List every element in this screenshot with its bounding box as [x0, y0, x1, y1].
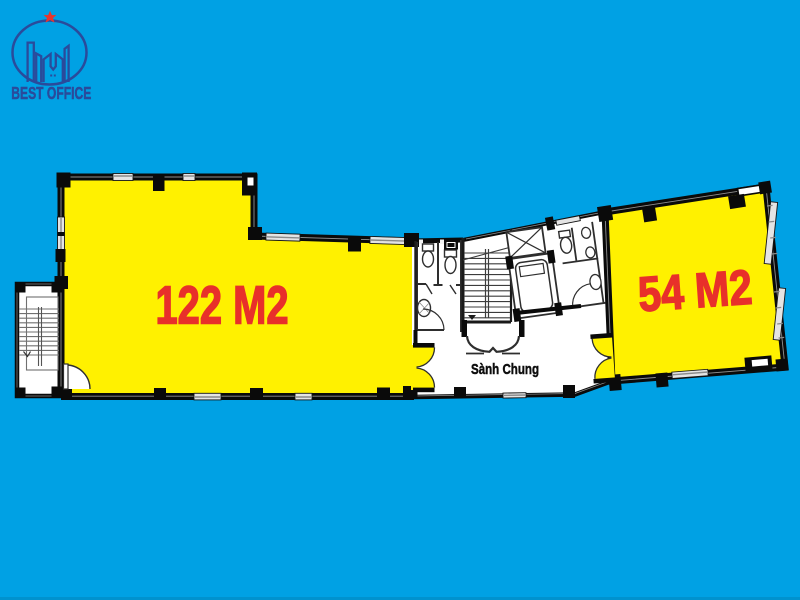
svg-text:Sành Chung: Sành Chung: [471, 361, 539, 378]
svg-text:122 M2: 122 M2: [156, 276, 289, 336]
svg-text:BEST OFFICE: BEST OFFICE: [11, 83, 91, 103]
svg-text:54 M2: 54 M2: [636, 261, 753, 323]
